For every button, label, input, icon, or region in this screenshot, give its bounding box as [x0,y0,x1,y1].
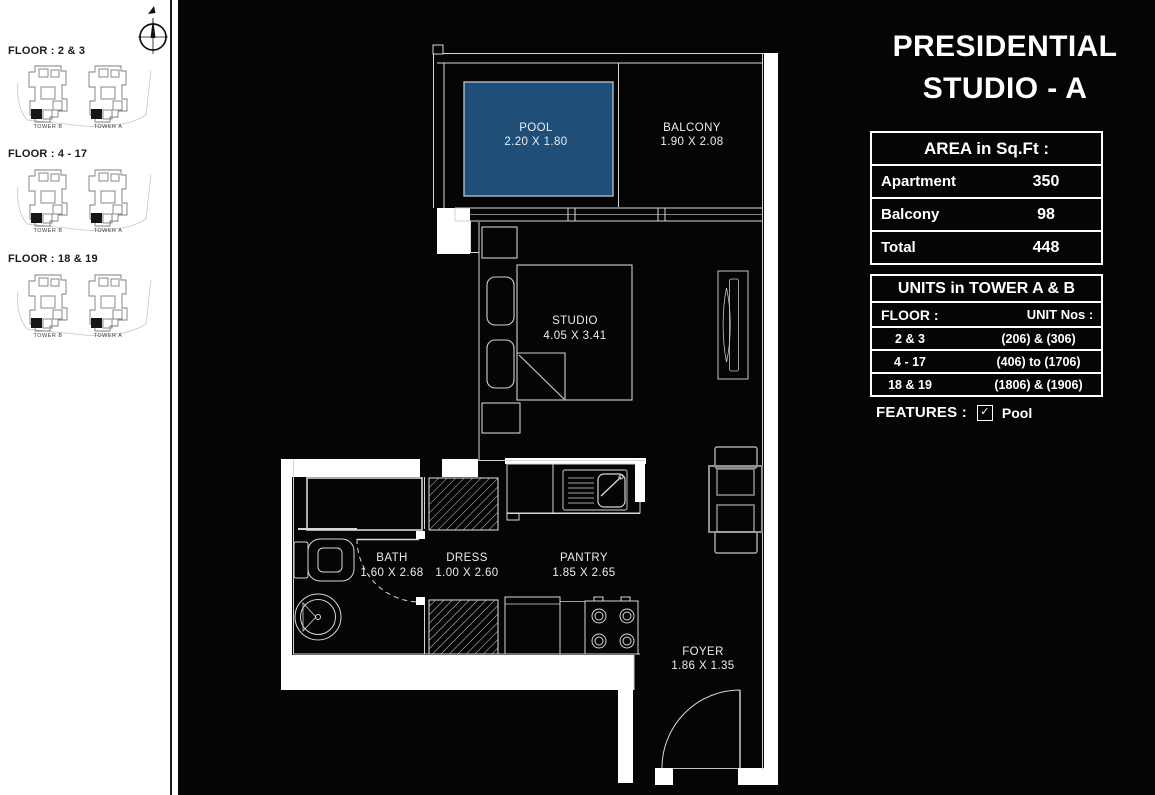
key-plan-sidebar: FLOOR : 2 & 3 TOWER B TOWER A FLOOR : 4 … [0,0,178,795]
compass-north-icon [135,4,171,56]
features-row: FEATURES : ✓ Pool [876,404,1141,421]
balcony-dims: 1.90 X 2.08 [660,136,723,148]
tower-b-label: TOWER B [18,228,78,234]
key-plan-floor-4-17 [14,167,164,233]
table-row: Total 448 [872,230,1101,263]
floor-section-3-label: FLOOR : 18 & 19 [8,253,98,265]
units-column-header: UNIT Nos : [991,307,1101,322]
units-row-units: (1806) & (1906) [948,378,1101,392]
area-row-value: 448 [991,239,1101,257]
area-row-value: 350 [991,173,1101,191]
studio-label: STUDIO [552,315,598,327]
studio-dims: 4.05 X 3.41 [543,330,606,342]
pool-dims: 2.20 X 1.80 [504,136,567,148]
washbasin-icon [295,594,341,640]
foyer-dims: 1.86 X 1.35 [671,660,734,672]
table-row: 4 - 17 (406) to (1706) [872,349,1101,372]
sliding-door-track [455,208,762,221]
floorplan-brochure-page: POOL 2.20 X 1.80 BALCONY 1.90 X 2.08 STU… [0,0,1155,795]
floor-column-header: FLOOR : [872,307,991,323]
features-label: FEATURES : [876,404,967,421]
pantry-dims: 1.85 X 2.65 [552,567,615,579]
stove-icon [585,597,638,654]
units-table-columns: FLOOR : UNIT Nos : [872,301,1101,326]
entrance-door [634,655,740,769]
dining-set [709,447,762,553]
unit-title-line2: STUDIO - A [869,68,1141,110]
pantry-label: PANTRY [560,552,608,564]
area-row-label: Balcony [872,206,991,223]
units-row-floor: 2 & 3 [872,332,948,346]
unit-title-line1: PRESIDENTIAL [869,26,1141,68]
floor-section-1-label: FLOOR : 2 & 3 [8,45,85,57]
tower-a-label: TOWER A [78,228,138,234]
dress-label: DRESS [446,552,488,564]
foyer-label: FOYER [682,646,724,658]
table-row: Apartment 350 [872,164,1101,197]
feature-pool: Pool [1002,405,1032,421]
area-row-label: Total [872,239,991,256]
tower-b-label: TOWER B [18,333,78,339]
bath-dims: 1.60 X 2.68 [360,567,423,579]
area-row-value: 98 [991,206,1101,224]
floor-section-2-label: FLOOR : 4 - 17 [8,148,87,160]
area-table-header: AREA in Sq.Ft : [872,133,1101,164]
bath-label: BATH [376,552,407,564]
units-row-units: (206) & (306) [948,332,1101,346]
key-plan-floor-2-3 [14,63,164,129]
pool-label: POOL [519,122,553,134]
table-row: 18 & 19 (1806) & (1906) [872,372,1101,395]
pool-feature-checkbox: ✓ [977,405,993,421]
units-row-floor: 18 & 19 [872,378,948,392]
info-panel: PRESIDENTIAL STUDIO - A AREA in Sq.Ft : … [869,0,1141,421]
tower-a-label: TOWER A [78,333,138,339]
table-row: Balcony 98 [872,197,1101,230]
units-row-units: (406) to (1706) [948,355,1101,369]
dress-dims: 1.00 X 2.60 [435,567,498,579]
units-table-header: UNITS in TOWER A & B [872,276,1101,301]
balcony-label: BALCONY [663,122,721,134]
tower-b-label: TOWER B [18,124,78,130]
units-table: UNITS in TOWER A & B FLOOR : UNIT Nos : … [870,274,1103,397]
table-row: 2 & 3 (206) & (306) [872,326,1101,349]
toilet-icon [294,539,354,581]
sidebar-divider [170,0,172,795]
key-plan-floor-18-19 [14,272,164,338]
unit-title: PRESIDENTIAL STUDIO - A [869,26,1141,110]
tower-a-label: TOWER A [78,124,138,130]
dress-wardrobes [429,478,498,654]
wardrobe [718,271,748,379]
units-row-floor: 4 - 17 [872,355,948,369]
kitchen-sink-icon [563,470,627,510]
area-table: AREA in Sq.Ft : Apartment 350 Balcony 98… [870,131,1103,265]
area-row-label: Apartment [872,173,991,190]
